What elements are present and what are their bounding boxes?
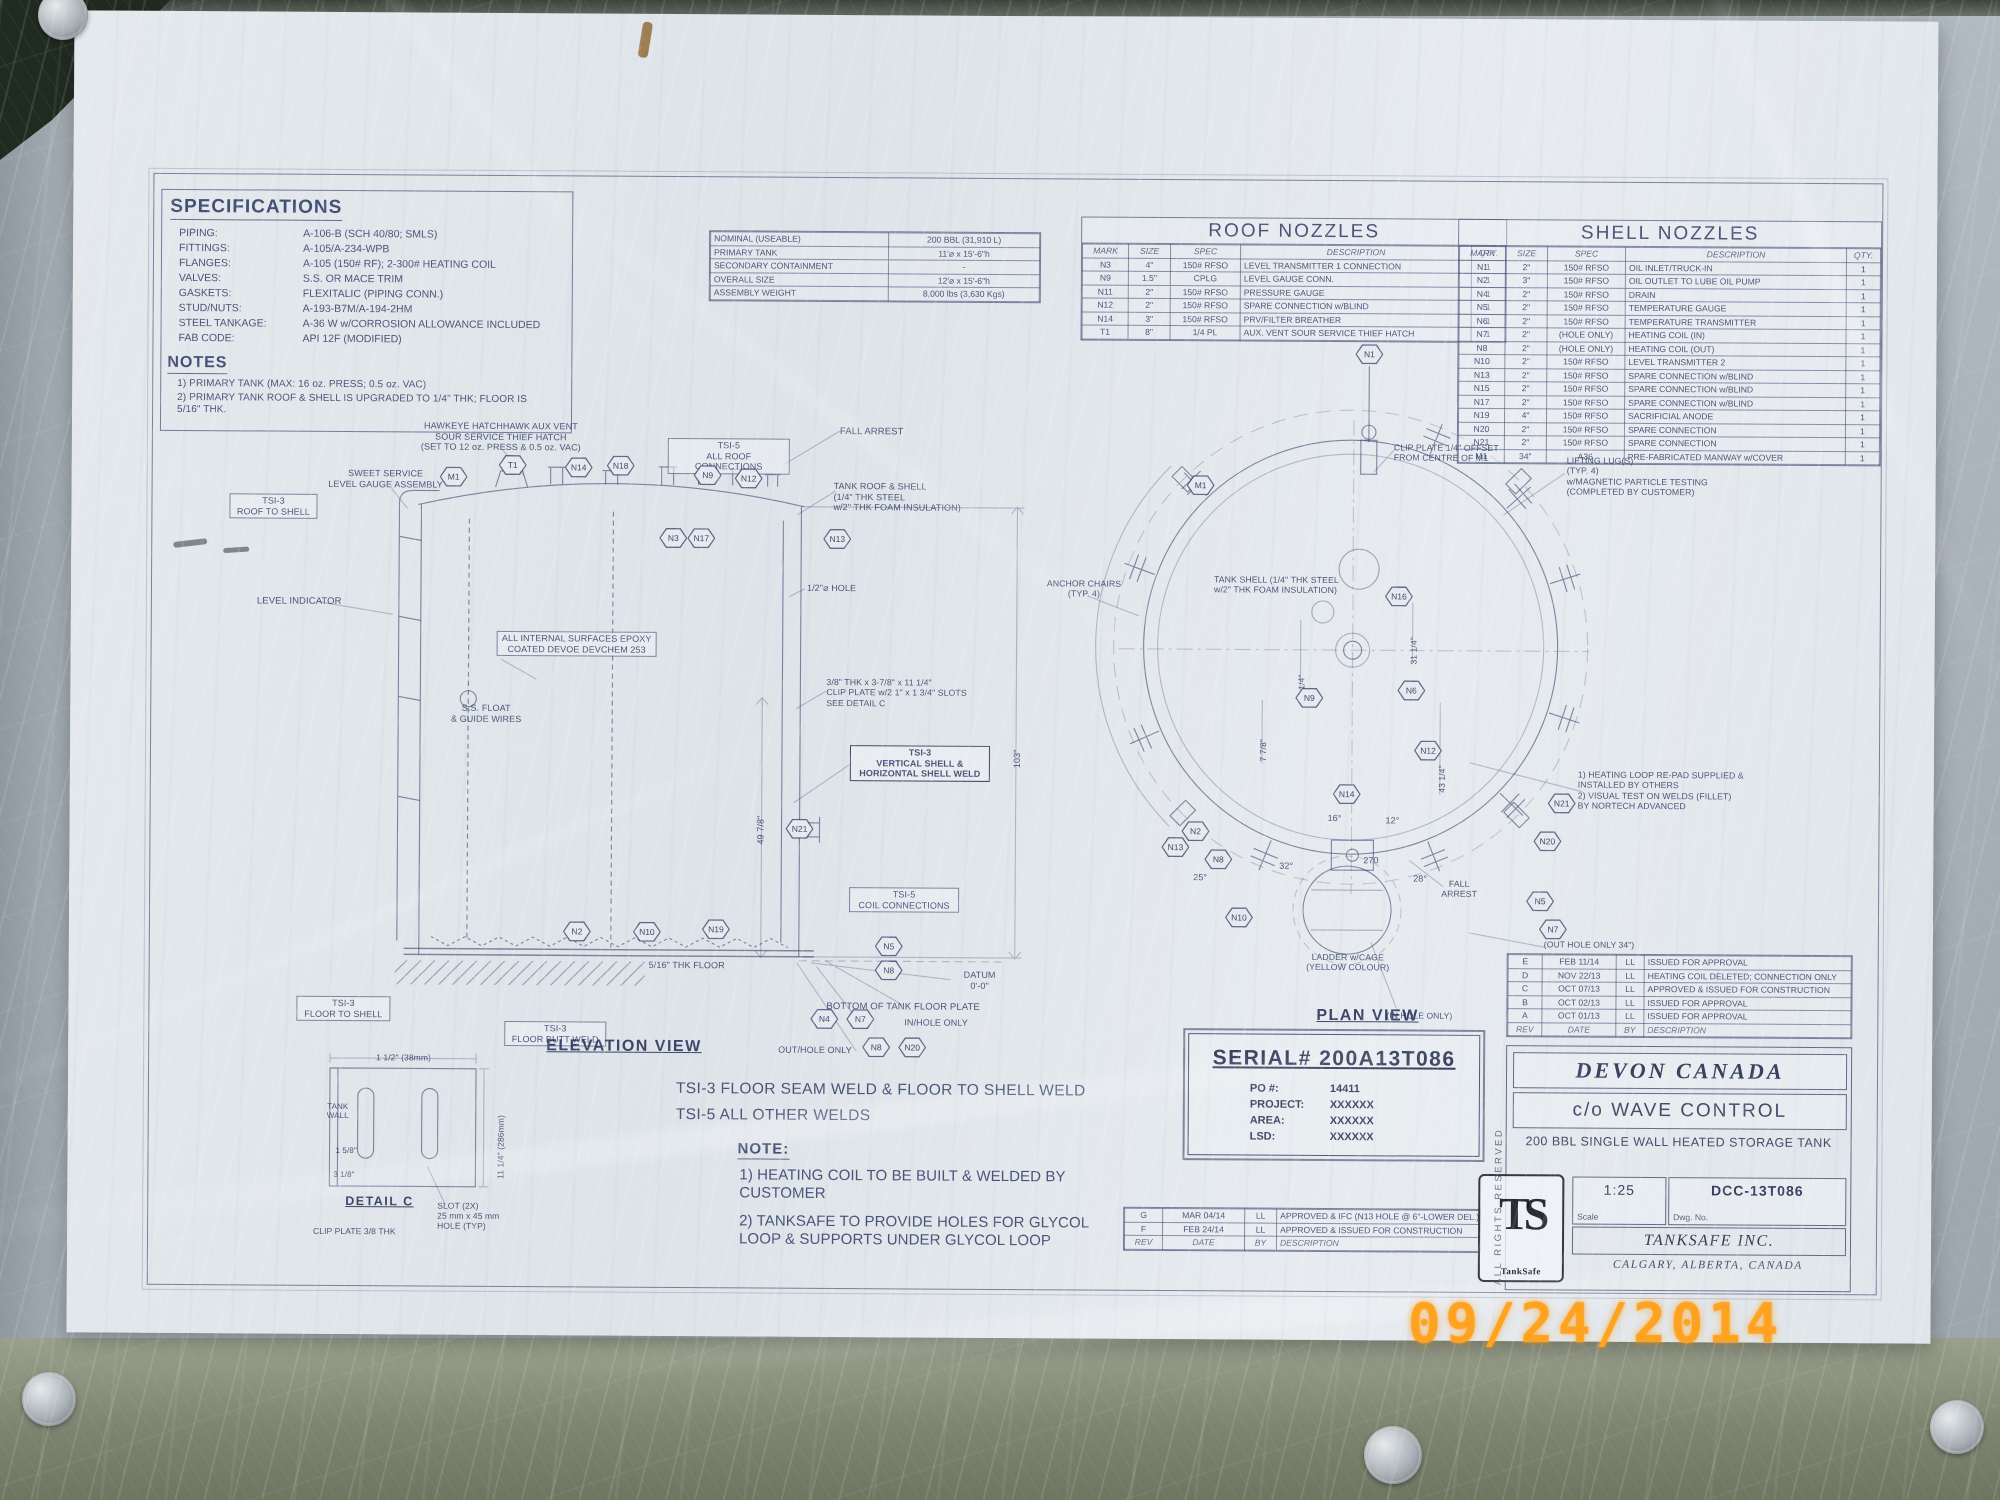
table-cell: D: [1508, 968, 1542, 982]
table-cell: LL: [1616, 969, 1644, 983]
table-cell: XXXXXX: [1327, 1097, 1437, 1114]
table-cell: REV: [1124, 1235, 1162, 1249]
table-cell: OCT 02/13: [1542, 995, 1616, 1009]
detail-c-title: DETAIL C: [345, 1194, 414, 1208]
scale-value: 1:25: [1573, 1182, 1665, 1199]
weld-note-2: 2) TANKSAFE TO PROVIDE HOLES FOR GLYCOL …: [739, 1212, 1089, 1250]
nozzle-mark-hex: N9: [1295, 688, 1323, 708]
table-cell: XXXXXX: [1327, 1129, 1437, 1146]
nozzle-mark-hex: N12: [1414, 741, 1442, 761]
nozzle-mark-hex: N20: [1533, 831, 1561, 851]
scale-label: Scale: [1577, 1212, 1598, 1222]
table-row: PROJECT:XXXXXX: [1247, 1097, 1437, 1114]
table-row: COCT 07/13LLAPPROVED & ISSUED FOR CONSTR…: [1508, 982, 1851, 998]
nozzle-mark-hex: N8: [1204, 849, 1232, 869]
table-cell: NOV 22/13: [1542, 968, 1616, 982]
table-row: BOCT 02/13LLISSUED FOR APPROVAL: [1508, 995, 1851, 1011]
nozzle-mark-hex: N1: [1355, 344, 1383, 364]
table-cell: PO #:: [1247, 1081, 1327, 1097]
table-cell: FEB 11/14: [1542, 955, 1616, 969]
table-cell: A: [1508, 1009, 1542, 1023]
table-cell: G: [1125, 1208, 1163, 1222]
table-cell: ISSUED FOR APPROVAL: [1644, 1009, 1851, 1024]
care-of: c/o WAVE CONTROL: [1513, 1092, 1847, 1130]
photo-scene: SPECIFICATIONS PIPING:A-106-B (SCH 40/80…: [0, 0, 2000, 1500]
table-row: REVDATEBYDESCRIPTION: [1508, 1022, 1851, 1038]
nozzle-mark-hex: N13: [1161, 837, 1189, 857]
table-row: AREA:XXXXXX: [1247, 1113, 1437, 1130]
plan-view-title: PLAN VIEW: [1316, 1007, 1418, 1026]
table-cell: APPROVED & IFC (N13 HOLE @ 6"-LOWER DEL.…: [1277, 1209, 1480, 1224]
revision-table-right: EFEB 11/14LLISSUED FOR APPROVALDNOV 22/1…: [1506, 953, 1853, 1039]
company-name: DEVON CANADA: [1513, 1052, 1847, 1090]
table-cell: DESCRIPTION: [1644, 1023, 1851, 1038]
table-cell: REV: [1508, 1022, 1542, 1036]
table-cell: DATE: [1542, 1022, 1616, 1036]
revision-table-bottom: GMAR 04/14LLAPPROVED & IFC (N13 HOLE @ 6…: [1123, 1207, 1481, 1253]
table-cell: DATE: [1162, 1236, 1244, 1250]
serial-number: SERIAL# 200A13T086: [1189, 1046, 1479, 1072]
table-cell: DESCRIPTION: [1276, 1236, 1479, 1251]
nozzle-mark-hex: N5: [1526, 891, 1554, 911]
table-cell: OCT 07/13: [1542, 982, 1616, 996]
table-cell: BY: [1616, 1023, 1644, 1037]
camera-date-stamp: 09/24/2014: [1408, 1292, 1783, 1355]
table-row: EFEB 11/14LLISSUED FOR APPROVAL: [1508, 955, 1851, 971]
dwg-no-label: Dwg. No.: [1673, 1212, 1708, 1222]
table-row: LSD:XXXXXX: [1247, 1129, 1437, 1146]
table-cell: LL: [1616, 955, 1644, 969]
bolt: [1930, 1400, 1984, 1454]
table-cell: BY: [1244, 1236, 1276, 1250]
table-cell: MAR 04/14: [1163, 1209, 1245, 1223]
rights-notice: ALL RIGHTS RESERVED: [1493, 1128, 1505, 1285]
weld-note-title: NOTE:: [737, 1140, 789, 1159]
tanksafe-logo: TS TankSafe: [1478, 1174, 1565, 1283]
table-cell: FEB 24/14: [1163, 1222, 1245, 1236]
nozzle-mark-hex: N6: [1397, 680, 1425, 700]
table-cell: LL: [1245, 1223, 1277, 1237]
table-cell: E: [1508, 955, 1542, 969]
table-row: PO #:14411: [1247, 1081, 1437, 1098]
table-cell: B: [1508, 995, 1542, 1009]
manufacturer-name: TANKSAFE INC.: [1572, 1227, 1846, 1257]
scale-cell: 1:25 Scale: [1572, 1177, 1666, 1226]
table-cell: LL: [1245, 1209, 1277, 1223]
tank-description: 200 BBL SINGLE WALL HEATED STORAGE TANK: [1513, 1134, 1845, 1150]
table-cell: PROJECT:: [1247, 1097, 1327, 1113]
table-cell: C: [1508, 982, 1542, 996]
bolt: [22, 1372, 76, 1426]
table-cell: ISSUED FOR APPROVAL: [1644, 955, 1851, 970]
elevation-view-title: ELEVATION VIEW: [546, 1037, 702, 1056]
weld-note-line2: TSI-5 ALL OTHER WELDS: [676, 1106, 871, 1125]
nozzle-mark-hex: M1: [1187, 475, 1215, 495]
table-cell: APPROVED & ISSUED FOR CONSTRUCTION: [1277, 1223, 1480, 1238]
table-row: REVDATEBYDESCRIPTION: [1124, 1235, 1479, 1251]
nozzle-mark-hex: N21: [1548, 793, 1576, 813]
table-cell: APPROVED & ISSUED FOR CONSTRUCTION: [1644, 982, 1851, 997]
weld-note-line1: TSI-3 FLOOR SEAM WELD & FLOOR TO SHELL W…: [676, 1080, 1086, 1101]
table-cell: LSD:: [1247, 1129, 1327, 1145]
drawing-sheet-wrap: SPECIFICATIONS PIPING:A-106-B (SCH 40/80…: [0, 0, 2000, 1500]
serial-block: SERIAL# 200A13T086 PO #:14411PROJECT:XXX…: [1188, 1033, 1481, 1157]
title-block: DEVON CANADA c/o WAVE CONTROL 200 BBL SI…: [1505, 1045, 1852, 1292]
table-cell: AREA:: [1247, 1113, 1327, 1129]
table-cell: LL: [1616, 1009, 1644, 1023]
table-cell: XXXXXX: [1327, 1113, 1437, 1130]
nozzle-mark-hex: N7: [1539, 919, 1567, 939]
manufacturer-location: CALGARY, ALBERTA, CANADA: [1572, 1259, 1844, 1273]
table-cell: 14411: [1327, 1081, 1437, 1098]
table-cell: LL: [1616, 982, 1644, 996]
table-row: AOCT 01/13LLISSUED FOR APPROVAL: [1508, 1009, 1851, 1025]
serial-fields-table: PO #:14411PROJECT:XXXXXXAREA:XXXXXXLSD:X…: [1247, 1081, 1437, 1146]
dwg-no-cell: DCC-13T086 Dwg. No.: [1668, 1177, 1846, 1226]
revision-table-right-table: EFEB 11/14LLISSUED FOR APPROVALDNOV 22/1…: [1507, 954, 1851, 1038]
nozzle-mark-hex: N10: [1225, 907, 1253, 927]
bolt: [1364, 1426, 1422, 1484]
table-cell: HEATING COIL DELETED; CONNECTION ONLY: [1644, 969, 1851, 984]
nozzle-mark-hex: N14: [1333, 784, 1361, 804]
revision-table-bottom-table: GMAR 04/14LLAPPROVED & IFC (N13 HOLE @ 6…: [1124, 1208, 1480, 1252]
weld-note-1: 1) HEATING COIL TO BE BUILT & WELDED BY …: [739, 1166, 1065, 1203]
table-cell: F: [1125, 1222, 1163, 1236]
nozzle-mark-hex: N16: [1385, 586, 1413, 606]
table-row: DNOV 22/13LLHEATING COIL DELETED; CONNEC…: [1508, 968, 1851, 984]
table-cell: ISSUED FOR APPROVAL: [1644, 996, 1851, 1011]
table-cell: OCT 01/13: [1542, 1009, 1616, 1023]
dwg-no-value: DCC-13T086: [1669, 1182, 1845, 1199]
table-cell: LL: [1616, 996, 1644, 1010]
